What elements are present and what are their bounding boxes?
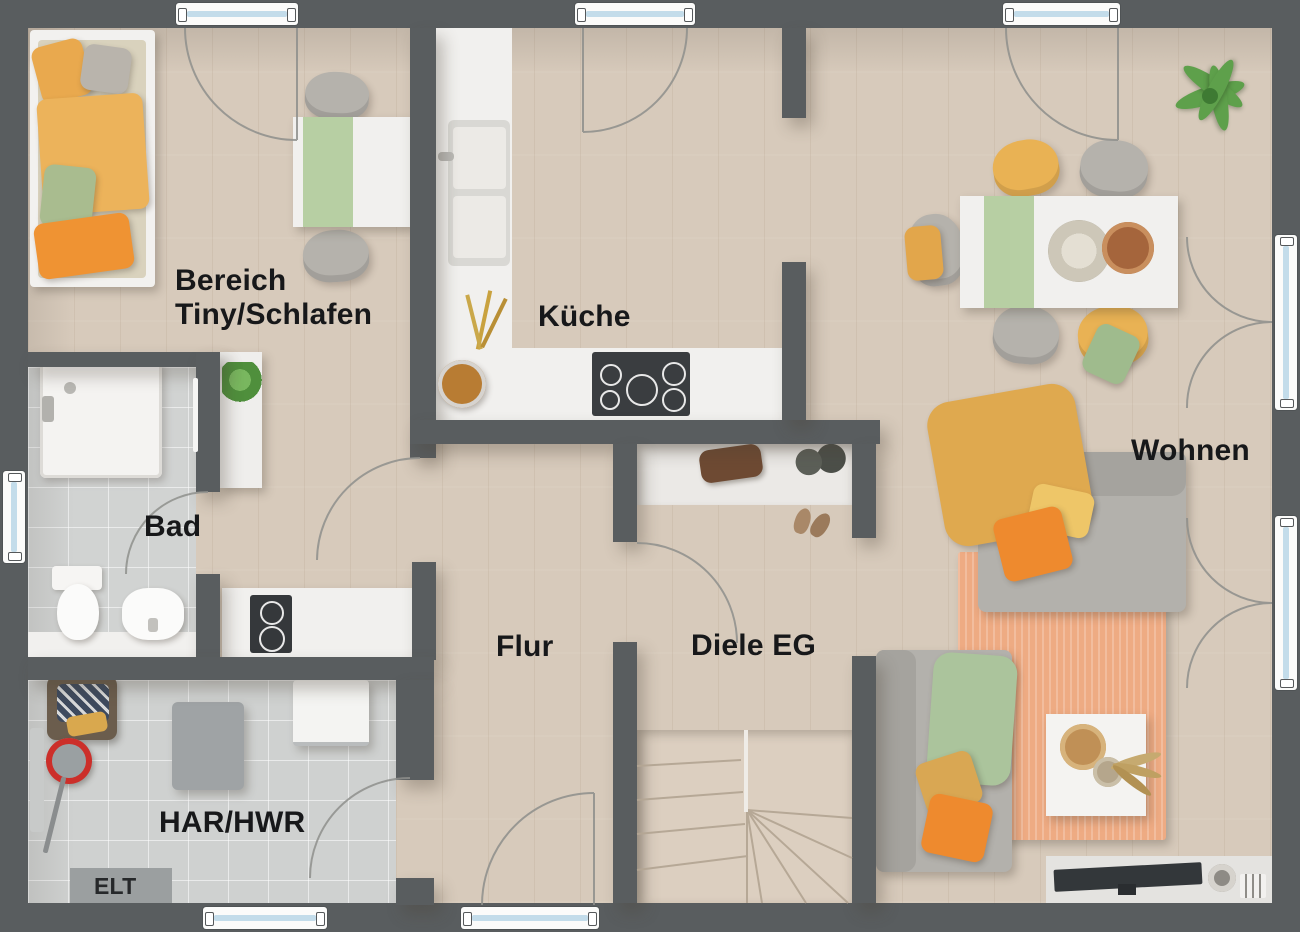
window-glass [214,915,316,921]
room-label-foyer: Diele EG [691,629,816,663]
window-handle [1280,679,1294,688]
faucet-icon [438,152,454,161]
door-glass [472,915,588,921]
window-glass [1283,527,1289,679]
kitchenette-cooktop [250,595,292,653]
tiny-table-runner [303,117,353,227]
tv-stand [1118,884,1136,895]
shower-faucet-icon [42,396,54,422]
window-glass [1283,246,1289,399]
room-label-hallway: Flur [496,630,553,664]
burner-icon [259,626,285,652]
burner-icon [600,364,622,386]
media-boxes [1240,874,1266,898]
bidet-faucet-icon [148,618,158,632]
wall-utility-right-stub [396,878,434,905]
window-handle [1280,518,1294,527]
window-bath [3,471,25,563]
window-handle [1280,399,1294,408]
terrace-door-1 [1275,235,1297,410]
window-handle [577,8,586,22]
wall-utility-right-upper [396,680,434,780]
burner-icon [600,390,620,410]
kitchen-cooktop [592,352,690,416]
wall-tiny-kitchen [410,28,436,458]
outer-wall-right [1272,0,1300,932]
dryer-appliance [293,680,369,746]
wall-tiny-hall-lower [412,562,436,660]
wall-utility-top [28,657,434,680]
wall-kitchen-living-upper [782,28,806,118]
flower-stem [465,294,482,349]
window-handle [1005,8,1014,22]
flower-vase [464,290,508,364]
window-door-kitchen [575,3,695,25]
burner-icon [260,601,284,625]
wall-hall-foyer-lower [613,642,637,903]
floor-plan: Bereich Tiny/Schlafen Küche Wohnen Bad F… [0,0,1300,932]
window-glass [586,11,684,17]
window-handle [684,8,693,22]
window-tiny [176,3,298,25]
room-label-tiny: Bereich Tiny/Schlafen [175,264,372,332]
wall-bath-top [28,352,220,367]
kitchen-sink [448,120,510,266]
palm-plant [1168,48,1252,152]
wall-kitchen-bottom [410,420,880,444]
fruit-bowl [438,360,486,408]
wall-bath-right-upper [196,352,220,492]
room-label-kitchen: Küche [538,300,631,334]
window-handle [178,8,187,22]
towel-on-chair [904,225,945,282]
room-label-bath: Bad [144,510,201,544]
tiny-chair-top [304,70,370,121]
sofa-pillow-orange-2 [919,792,994,864]
door-handle [588,912,597,926]
burner-icon [662,362,686,386]
wall-foyer-living-upper [852,444,876,538]
wall-kitchen-living-lower [782,262,806,420]
window-handle [316,912,325,926]
table-centerpiece-flowers [1048,220,1110,282]
palm-core [1202,88,1218,104]
dining-table-runner [984,196,1034,308]
room-label-utility: HAR/HWR [159,806,305,840]
terrace-door-2 [1275,516,1297,690]
window-glass [187,11,287,17]
table-copper-bowl [1102,222,1154,274]
window-glass [1014,11,1109,17]
window-handle [287,8,296,22]
window-utility [203,907,327,929]
room-label-living: Wohnen [1131,434,1250,468]
potted-plant [222,362,262,402]
outer-wall-left [0,0,28,932]
bed-pillow-gray [79,43,133,95]
entrance-door [461,907,599,929]
sink-basin [453,196,506,258]
staircase [637,730,852,903]
window-door-living [1003,3,1120,25]
room-label-tiny-line2: Tiny/Schlafen [175,298,372,332]
wardrobe-deco-plants [792,444,848,480]
door-handle [463,912,472,926]
sofa-backrest [876,650,916,872]
mop-bucket [46,738,92,784]
toilet [57,584,99,640]
window-handle [1109,8,1118,22]
wall-bath-right-lower [196,574,220,660]
dried-grass [1108,736,1166,800]
burner-icon [626,374,658,406]
window-handle [1280,237,1294,246]
wall-foyer-living-lower [852,656,876,903]
window-handle [205,912,214,926]
wall-hall-foyer-upper [613,444,637,542]
burner-icon [662,388,686,412]
room-label-tiny-line1: Bereich [175,264,372,298]
outer-wall-bottom [0,903,1300,932]
bidet [122,588,184,640]
laundry-basket [47,676,117,740]
room-label-electrical: ELT [94,874,136,898]
ironing-board [30,728,44,832]
sink-basin [453,127,506,189]
shower-drain [64,382,76,394]
window-glass [11,482,17,552]
shower [40,360,162,478]
washing-machine [172,702,244,790]
window-handle [8,473,22,482]
window-handle [8,552,22,561]
deco-spool [1208,864,1236,892]
towel-rail [193,378,198,452]
